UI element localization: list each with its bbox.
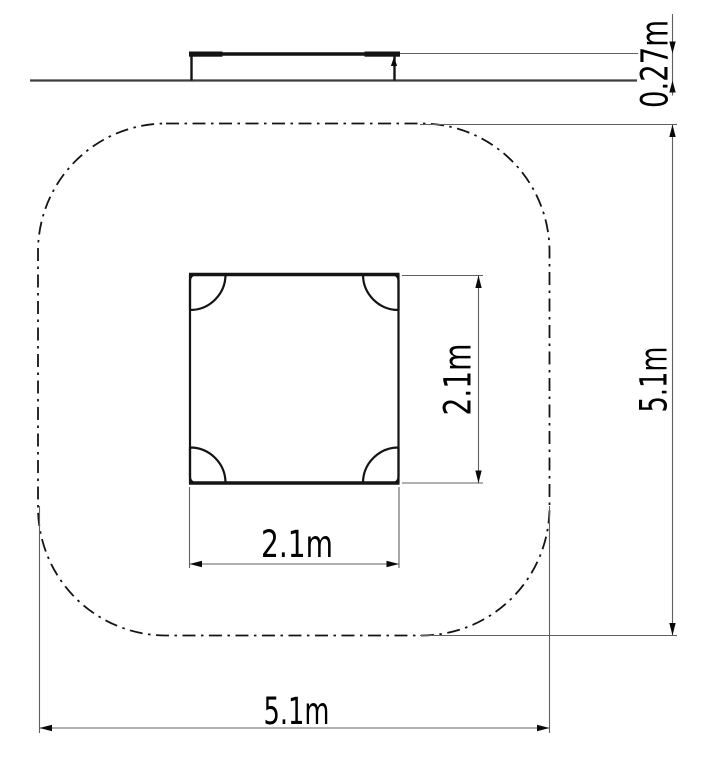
platform-height-arrow-icon (391, 57, 397, 66)
technical-drawing-page: 0.27m 2.1m 2.1m (0, 0, 722, 768)
zone-width-arrow-right-icon (537, 725, 550, 731)
trampoline-dimension-drawing: 0.27m 2.1m 2.1m (0, 0, 722, 768)
zone-width-arrow-left-icon (40, 725, 53, 731)
mat-depth-dimension: 2.1m (402, 276, 483, 484)
mat-depth-dimension-label: 2.1m (437, 344, 480, 416)
mat-depth-arrow-down-icon (475, 471, 481, 484)
mat-width-dimension-label: 2.1m (261, 523, 333, 566)
mat-depth-arrow-up-icon (475, 276, 481, 289)
platform-right-corner-pad-profile (365, 52, 401, 57)
corner-pad-top-left (190, 275, 226, 311)
zone-depth-arrow-up-icon (669, 125, 675, 138)
mat-width-arrow-left-icon (190, 561, 203, 567)
zone-depth-arrow-down-icon (669, 623, 675, 636)
plan-view: 2.1m 2.1m 5.1m 5.1m (38, 124, 677, 734)
platform-left-corner-pad-profile (189, 52, 223, 57)
corner-pad-bottom-left (190, 448, 226, 484)
zone-depth-dimension-label: 5.1m (633, 347, 676, 413)
zone-width-dimension-label: 5.1m (264, 690, 330, 733)
corner-pad-bottom-right (363, 448, 399, 484)
side-elevation-view: 0.27m (30, 14, 677, 108)
mat-width-dimension: 2.1m (190, 487, 400, 568)
corner-pad-top-right (363, 275, 399, 311)
height-dimension-label: 0.27m (634, 20, 677, 108)
mat-width-arrow-right-icon (387, 561, 400, 567)
